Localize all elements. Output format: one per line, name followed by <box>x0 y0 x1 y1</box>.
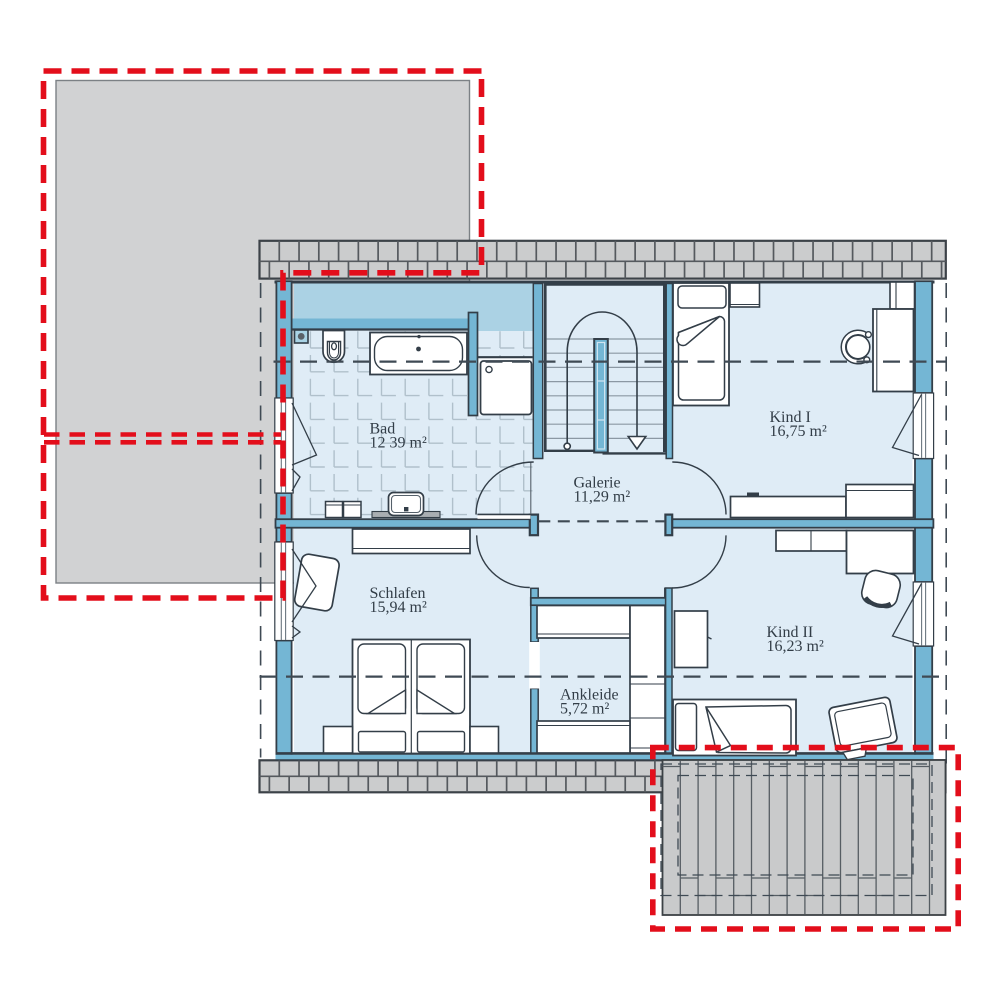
svg-text:5,72 m²: 5,72 m² <box>560 701 609 718</box>
svg-text:15,94 m²: 15,94 m² <box>370 599 427 616</box>
svg-text:12 39 m²: 12 39 m² <box>370 435 427 452</box>
svg-text:16,75 m²: 16,75 m² <box>770 423 827 440</box>
svg-text:11,29 m²: 11,29 m² <box>574 489 631 506</box>
svg-text:16,23 m²: 16,23 m² <box>767 638 824 655</box>
